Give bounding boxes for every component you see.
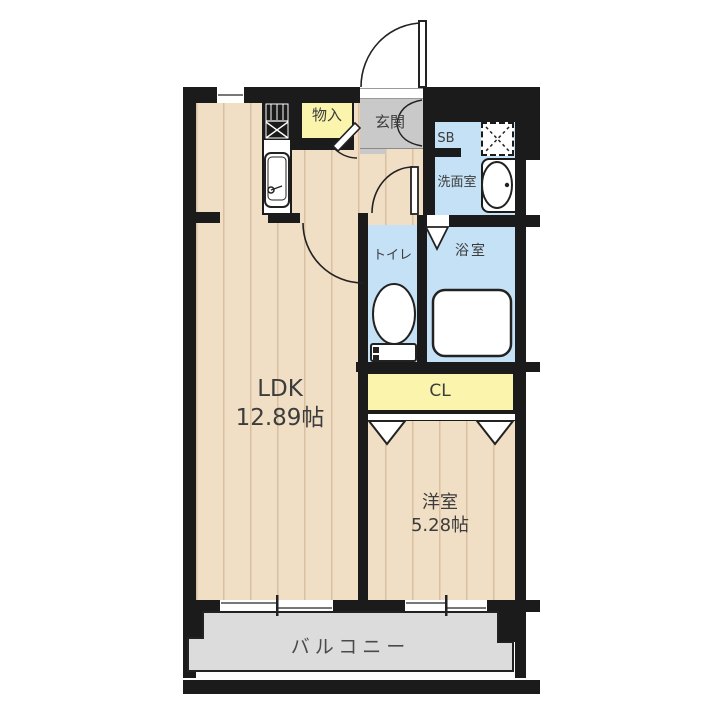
wall-toilet-bath [417, 227, 427, 362]
entrance-door-leaf [419, 21, 426, 87]
wall-below-wet-rooms [356, 362, 540, 372]
window-top [217, 87, 244, 103]
window-balcony-left [220, 600, 333, 612]
entrance-step [360, 149, 386, 154]
balcony-wall-left [183, 612, 203, 638]
wall-vertical-center [358, 213, 368, 612]
balcony-drain-strip [188, 671, 513, 680]
closet-label: CL [365, 381, 515, 402]
toilet-room [368, 225, 417, 362]
balcony-label: バルコニー [203, 636, 498, 660]
wash-basin-recess [481, 158, 515, 213]
washroom-label: 洗面室 [430, 175, 484, 191]
wall-stub-mid [268, 213, 300, 223]
toilet-label: トイレ [368, 248, 417, 264]
wall-storage-bottom [300, 138, 354, 150]
kitchen-counter [262, 100, 292, 215]
closet-door-track [365, 412, 515, 421]
storage-label: 物入 [300, 106, 354, 125]
entrance-door-sill [360, 88, 423, 99]
wall-under-shoebox [435, 148, 461, 157]
wall-bottom-left [183, 600, 220, 612]
wall-left [183, 87, 196, 678]
ldk-name: LDK [205, 375, 355, 404]
floorplan: 物入 玄関 SB 洗面室 トイレ 浴室 CL LDK 12.89帖 洋室 5.2… [0, 0, 720, 720]
entrance-label: 玄関 [360, 113, 420, 132]
shoebox-label: SB [431, 131, 461, 147]
ldk-label: LDK 12.89帖 [205, 375, 355, 433]
wall-top-left [183, 87, 360, 103]
washing-machine-space [481, 122, 514, 156]
entrance-door-arc [361, 23, 423, 87]
western-room-label: 洋室 5.28帖 [375, 492, 505, 537]
wall-above-bath-left [417, 215, 427, 227]
wall-bottom-center [333, 600, 405, 612]
balcony-wall-right [498, 612, 517, 642]
wall-above-bath-right [449, 215, 540, 227]
wall-entrance-right [423, 87, 435, 227]
western-room-size: 5.28帖 [375, 515, 505, 538]
ldk-size: 12.89帖 [205, 404, 355, 433]
wall-right [515, 87, 526, 678]
building-bottom-bar [183, 680, 540, 694]
wall-bottom-right [487, 600, 540, 612]
bath-door-gap [427, 215, 449, 227]
window-balcony-right [405, 600, 487, 612]
western-room-name: 洋室 [375, 492, 505, 515]
bathroom-label: 浴室 [427, 243, 515, 261]
wall-stub-left [183, 212, 220, 223]
